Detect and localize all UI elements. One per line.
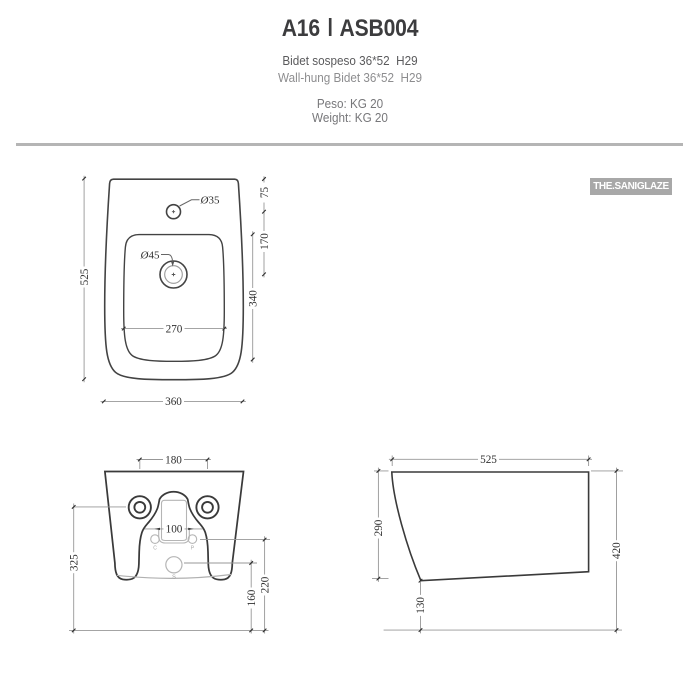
svg-text:130: 130 — [415, 597, 427, 614]
svg-text:Ø35: Ø35 — [200, 195, 220, 207]
svg-text:420: 420 — [611, 542, 623, 559]
svg-text:360: 360 — [165, 396, 182, 408]
svg-text:C: C — [153, 546, 157, 552]
svg-text:170: 170 — [259, 233, 271, 250]
svg-text:P: P — [191, 546, 195, 552]
svg-text:Ø45: Ø45 — [140, 250, 160, 262]
svg-text:525: 525 — [480, 454, 497, 466]
svg-text:75: 75 — [259, 187, 271, 199]
svg-text:290: 290 — [373, 519, 385, 536]
svg-text:270: 270 — [166, 323, 183, 335]
svg-text:340: 340 — [247, 290, 259, 307]
svg-text:S: S — [172, 575, 176, 581]
svg-text:325: 325 — [68, 554, 80, 571]
svg-text:100: 100 — [166, 524, 183, 536]
svg-text:160: 160 — [246, 589, 258, 606]
svg-text:525: 525 — [79, 268, 91, 285]
svg-text:220: 220 — [259, 576, 271, 593]
svg-text:180: 180 — [165, 454, 182, 466]
